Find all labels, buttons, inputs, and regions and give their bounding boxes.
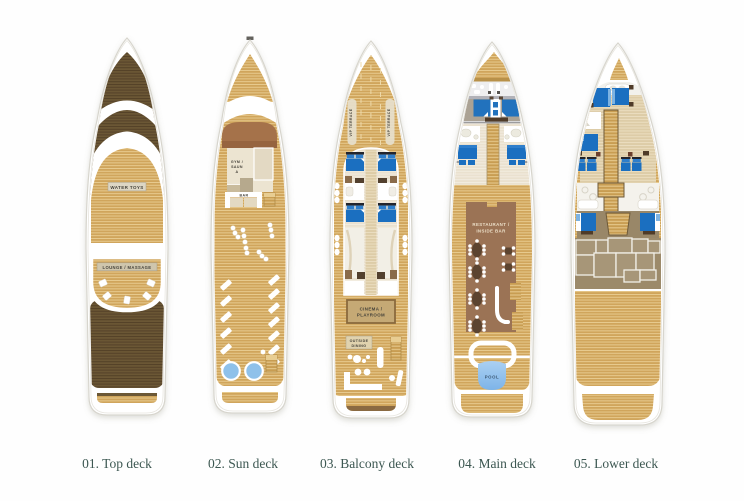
svg-text:WATER TOYS: WATER TOYS bbox=[110, 185, 143, 190]
svg-text:05. Lower deck: 05. Lower deck bbox=[574, 456, 659, 471]
svg-text:A: A bbox=[236, 170, 239, 174]
svg-text:DINING: DINING bbox=[352, 344, 367, 348]
svg-text:01. Top deck: 01. Top deck bbox=[82, 456, 152, 471]
svg-text:03. Balcony deck: 03. Balcony deck bbox=[320, 456, 414, 471]
svg-text:VIP TERRACE: VIP TERRACE bbox=[349, 108, 353, 136]
svg-text:GYM /: GYM / bbox=[231, 160, 243, 164]
svg-text:CINEMA /: CINEMA / bbox=[360, 307, 383, 312]
svg-text:PLAYROOM: PLAYROOM bbox=[357, 313, 385, 318]
svg-text:02. Sun deck: 02. Sun deck bbox=[208, 456, 278, 471]
svg-text:04. Main deck: 04. Main deck bbox=[458, 456, 536, 471]
svg-text:RESTAURANT /: RESTAURANT / bbox=[472, 222, 510, 227]
svg-text:BAR: BAR bbox=[240, 193, 249, 197]
svg-text:LOUNGE / MASSAGE: LOUNGE / MASSAGE bbox=[103, 265, 152, 270]
svg-text:SAUN: SAUN bbox=[231, 165, 243, 169]
svg-text:OUTSIDE: OUTSIDE bbox=[350, 339, 369, 343]
svg-text:POOL: POOL bbox=[485, 375, 500, 380]
svg-text:INSIDE BAR: INSIDE BAR bbox=[476, 229, 506, 234]
svg-text:VIP TERRACE: VIP TERRACE bbox=[387, 108, 391, 136]
